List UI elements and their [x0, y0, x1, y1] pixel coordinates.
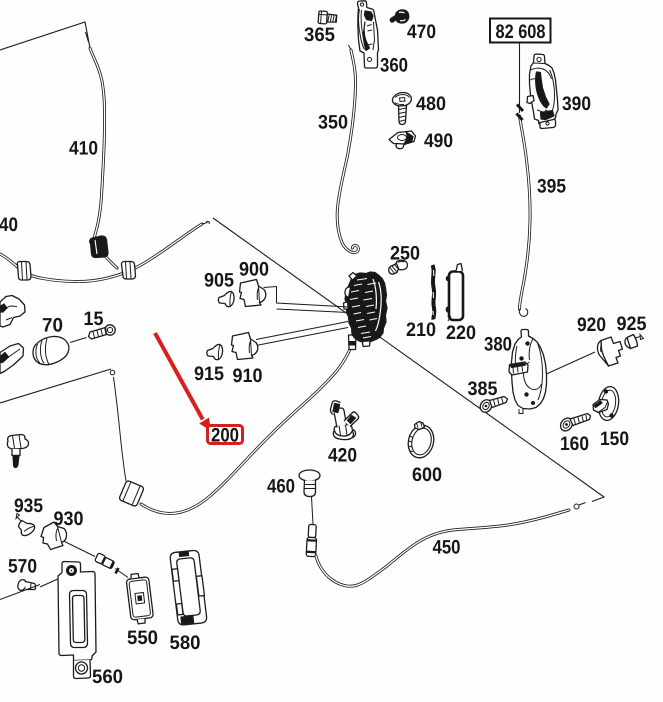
svg-text:350: 350 [318, 112, 348, 134]
svg-text:385: 385 [468, 378, 498, 400]
svg-text:410: 410 [69, 138, 98, 160]
svg-text:925: 925 [617, 313, 647, 335]
svg-text:550: 550 [127, 627, 158, 649]
svg-text:40: 40 [0, 214, 18, 236]
svg-text:395: 395 [537, 176, 566, 198]
svg-text:470: 470 [407, 21, 436, 43]
svg-text:460: 460 [267, 476, 295, 498]
svg-text:150: 150 [600, 428, 629, 450]
svg-text:905: 905 [204, 270, 234, 292]
svg-text:70: 70 [42, 315, 63, 337]
svg-text:490: 490 [424, 130, 453, 152]
svg-text:570: 570 [8, 556, 37, 578]
svg-text:200: 200 [211, 425, 239, 447]
svg-text:920: 920 [577, 314, 606, 336]
svg-text:210: 210 [406, 319, 436, 341]
svg-text:560: 560 [92, 666, 123, 688]
svg-text:420: 420 [328, 445, 357, 467]
svg-text:380: 380 [484, 334, 512, 356]
svg-text:580: 580 [170, 632, 201, 654]
svg-text:910: 910 [233, 365, 263, 387]
svg-text:160: 160 [560, 433, 589, 455]
svg-text:220: 220 [446, 322, 476, 344]
svg-text:450: 450 [433, 537, 461, 559]
svg-text:900: 900 [239, 259, 269, 281]
svg-text:365: 365 [304, 24, 335, 46]
svg-text:360: 360 [380, 55, 408, 77]
svg-text:935: 935 [14, 495, 43, 517]
svg-text:915: 915 [194, 363, 224, 385]
svg-text:15: 15 [84, 308, 104, 330]
svg-text:600: 600 [412, 464, 442, 486]
svg-text:480: 480 [416, 93, 446, 115]
svg-text:390: 390 [562, 93, 591, 115]
svg-text:82 608: 82 608 [496, 21, 546, 43]
